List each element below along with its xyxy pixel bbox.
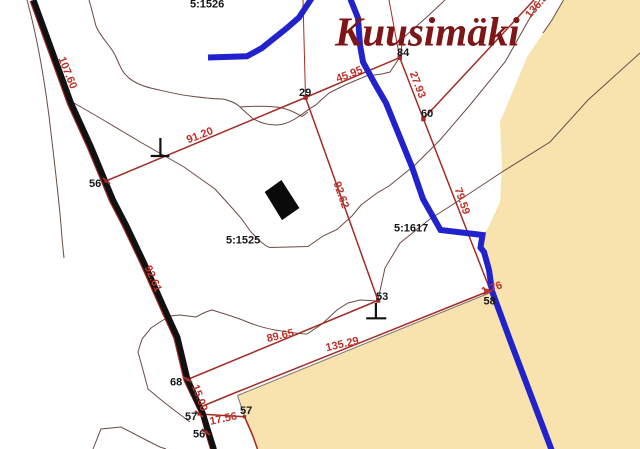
svg-text:5:1617: 5:1617 (394, 223, 428, 235)
svg-text:57: 57 (185, 411, 197, 423)
svg-text:29: 29 (299, 87, 311, 99)
svg-text:68: 68 (170, 377, 182, 389)
svg-text:53: 53 (376, 291, 388, 303)
svg-text:5:1525: 5:1525 (226, 235, 260, 247)
svg-text:56: 56 (193, 429, 205, 441)
svg-text:56: 56 (89, 178, 101, 190)
svg-text:57: 57 (240, 405, 252, 417)
svg-text:84: 84 (397, 47, 410, 59)
svg-text:5:1526: 5:1526 (190, 0, 224, 11)
svg-text:Kuusimäki: Kuusimäki (334, 9, 520, 55)
svg-text:60: 60 (421, 108, 433, 120)
